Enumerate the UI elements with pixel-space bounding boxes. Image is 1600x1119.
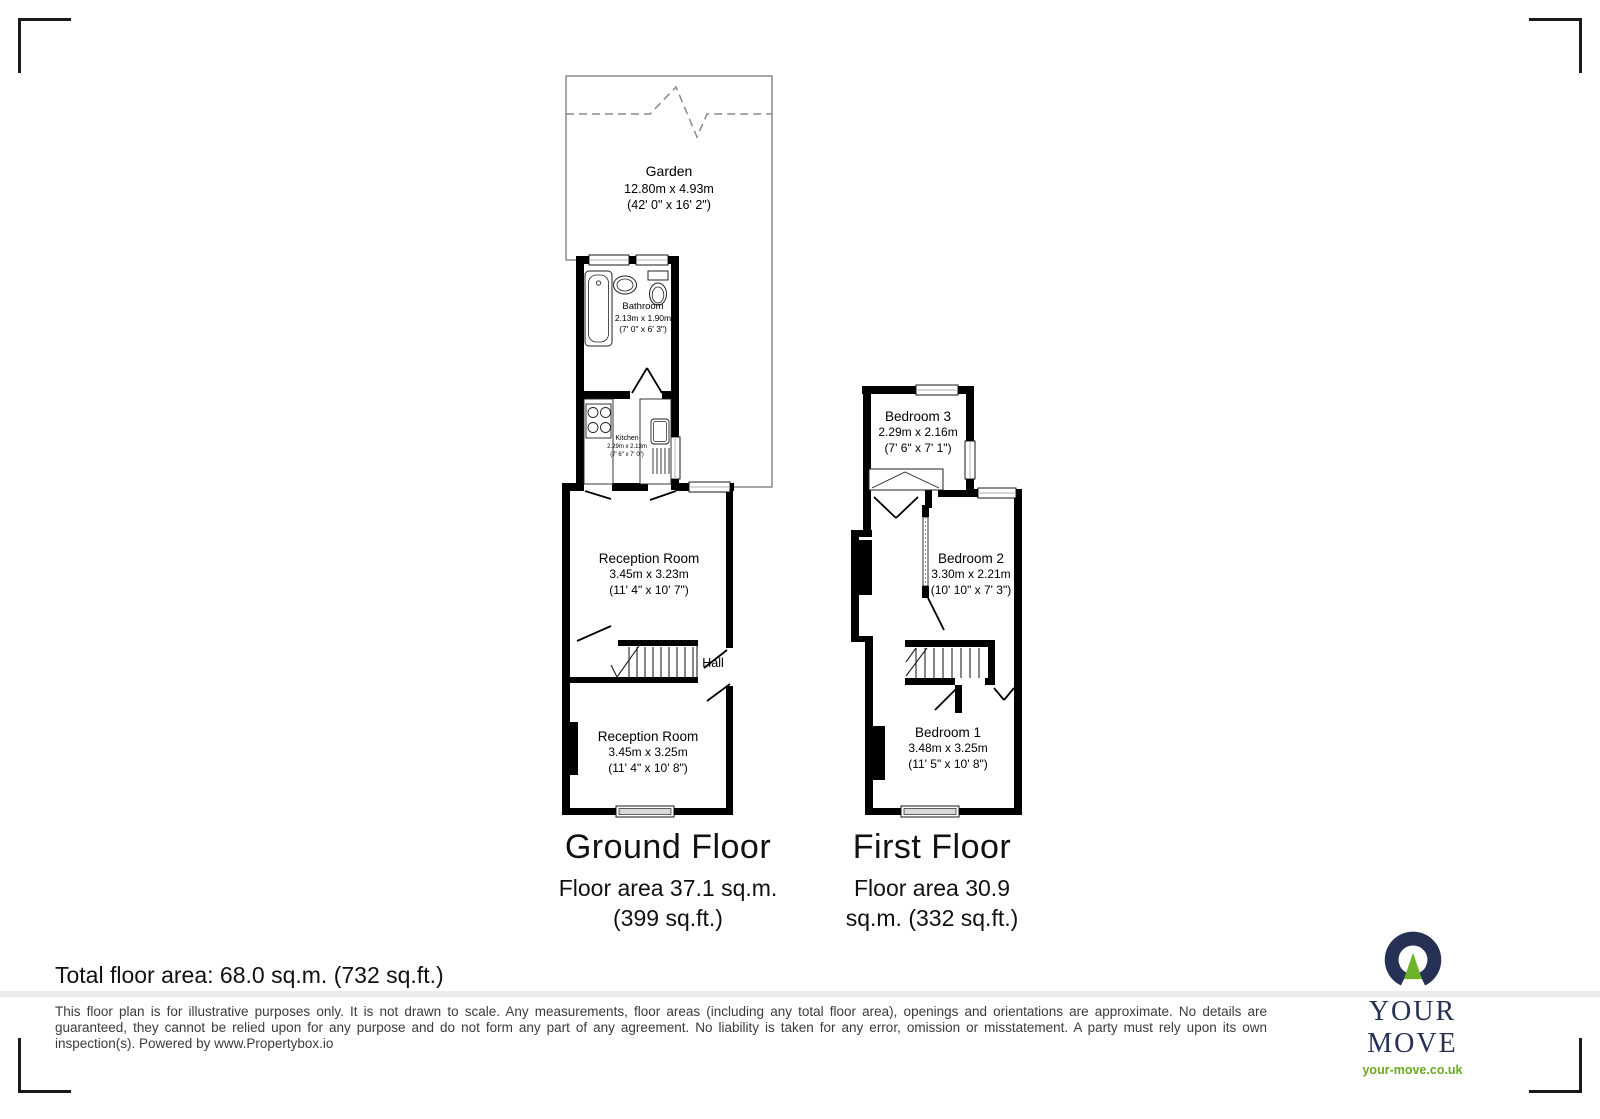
room-dims-metric: 3.45m x 3.25m bbox=[598, 745, 699, 760]
logo-website-text: your-move.co.uk bbox=[1330, 1063, 1495, 1077]
room-dims-imperial: (7' 6" x 7' 0") bbox=[607, 451, 647, 459]
room-name: Bedroom 3 bbox=[878, 408, 957, 425]
your-move-logo: YOUR MOVE your-move.co.uk bbox=[1330, 930, 1495, 1077]
room-dims-metric: 2.13m x 1.90m bbox=[615, 313, 671, 324]
window-icon bbox=[978, 488, 1016, 498]
window-icon bbox=[670, 437, 680, 479]
wardrobe-icon bbox=[869, 469, 943, 490]
bedroom-3-label: Bedroom 3 2.29m x 2.16m (7' 6" x 7' 1") bbox=[878, 408, 957, 456]
room-dims-metric: 2.29m x 2.13m bbox=[607, 444, 647, 452]
bathroom-sink-icon bbox=[614, 276, 637, 294]
window-icon bbox=[901, 806, 959, 817]
room-dims-imperial: (10' 10" x 7' 3") bbox=[931, 583, 1011, 598]
logo-brand-text: YOUR MOVE bbox=[1330, 996, 1495, 1060]
bathtub-icon bbox=[585, 271, 612, 346]
ground-floor-caption: Ground Floor Floor area 37.1 sq.m. (399 … bbox=[559, 828, 778, 932]
room-dims-metric: 2.29m x 2.16m bbox=[878, 425, 957, 440]
first-floor-caption: First Floor Floor area 30.9 sq.m. (332 s… bbox=[846, 828, 1019, 932]
first-floor-title: First Floor bbox=[846, 828, 1019, 867]
ground-floor-area-line1: Floor area 37.1 sq.m. bbox=[559, 875, 778, 903]
first-floor-area-line2: sq.m. (332 sq.ft.) bbox=[846, 905, 1019, 933]
kitchen-label: Kitchen 2.29m x 2.13m (7' 6" x 7' 0") bbox=[607, 435, 647, 459]
window-icon bbox=[916, 385, 958, 395]
room-name: Bedroom 2 bbox=[931, 550, 1011, 567]
room-dims-metric: 12.80m x 4.93m bbox=[624, 181, 714, 197]
room-dims-imperial: (7' 6" x 7' 1") bbox=[878, 441, 957, 456]
room-name: Reception Room bbox=[598, 728, 699, 745]
room-name: Bedroom 1 bbox=[908, 724, 988, 741]
room-dims-metric: 3.30m x 2.21m bbox=[931, 567, 1011, 582]
window-icon bbox=[616, 806, 674, 817]
room-name: Kitchen bbox=[607, 435, 647, 444]
room-dims-imperial: (11' 4" x 10' 7") bbox=[599, 583, 700, 598]
logo-triangle bbox=[1403, 953, 1421, 979]
garden-label: Garden 12.80m x 4.93m (42' 0" x 16' 2") bbox=[624, 163, 714, 213]
room-dims-metric: 3.45m x 3.23m bbox=[599, 567, 700, 582]
toilet-icon bbox=[648, 271, 668, 305]
reception-room-2-label: Reception Room 3.45m x 3.25m (11' 4" x 1… bbox=[598, 728, 699, 776]
room-name: Garden bbox=[624, 163, 714, 181]
room-dims-imperial: (42' 0" x 16' 2") bbox=[624, 197, 714, 213]
room-name: Reception Room bbox=[599, 550, 700, 567]
first-floor-area-line1: Floor area 30.9 bbox=[846, 875, 1019, 903]
bedroom-2-label: Bedroom 2 3.30m x 2.21m (10' 10" x 7' 3"… bbox=[931, 550, 1011, 598]
your-move-arch-icon bbox=[1381, 930, 1445, 994]
stove-icon bbox=[586, 404, 611, 438]
hall-label: Hall bbox=[702, 656, 724, 670]
reception-room-1-label: Reception Room 3.45m x 3.23m (11' 4" x 1… bbox=[599, 550, 700, 598]
room-dims-metric: 3.48m x 3.25m bbox=[908, 741, 988, 756]
ground-floor-title: Ground Floor bbox=[559, 828, 778, 867]
window-icon bbox=[636, 255, 668, 265]
window-icon bbox=[589, 255, 629, 265]
room-dims-imperial: (7' 0" x 6' 3") bbox=[615, 324, 671, 335]
window-icon bbox=[689, 482, 730, 492]
disclaimer-text: This floor plan is for illustrative purp… bbox=[55, 1004, 1267, 1052]
room-dims-imperial: (11' 4" x 10' 8") bbox=[598, 761, 699, 776]
floorplan-page: Garden 12.80m x 4.93m (42' 0" x 16' 2") … bbox=[0, 0, 1600, 1119]
window-icon bbox=[965, 441, 975, 479]
total-floor-area: Total floor area: 68.0 sq.m. (732 sq.ft.… bbox=[55, 962, 444, 989]
room-dims-imperial: (11' 5" x 10' 8") bbox=[908, 757, 988, 772]
partition bbox=[923, 517, 928, 586]
ground-floor-area-line2: (399 sq.ft.) bbox=[559, 905, 778, 933]
bathroom-label: Bathroom 2.13m x 1.90m (7' 0" x 6' 3") bbox=[615, 301, 671, 335]
room-name: Bathroom bbox=[615, 301, 671, 313]
bedroom-1-label: Bedroom 1 3.48m x 3.25m (11' 5" x 10' 8"… bbox=[908, 724, 988, 772]
